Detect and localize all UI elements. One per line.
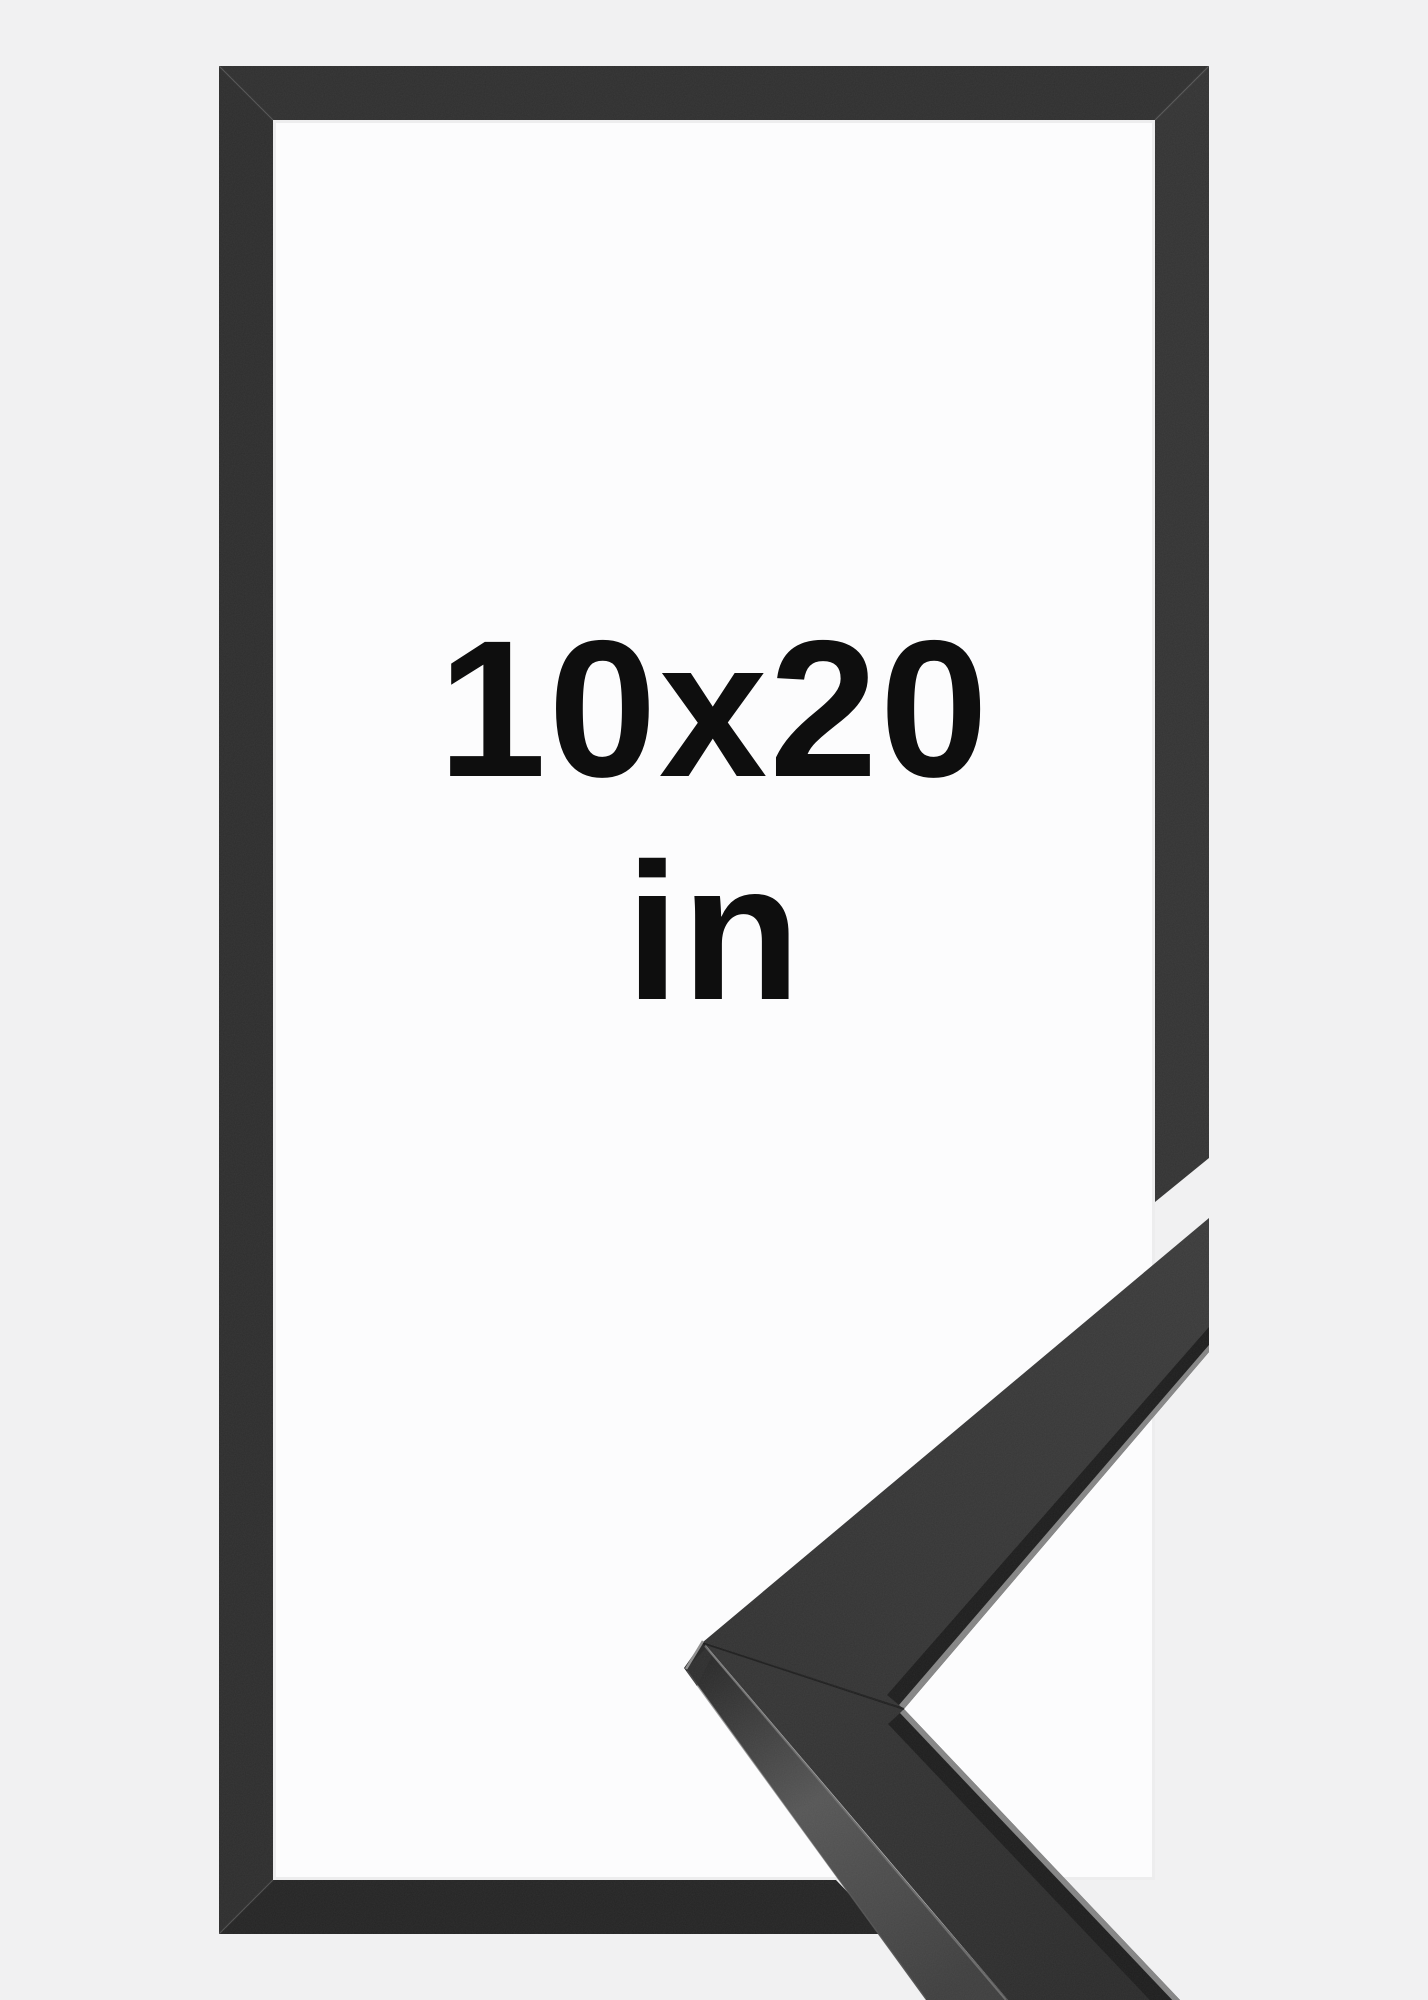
frame-opening <box>273 120 1155 1880</box>
frame-illustration <box>0 0 1428 2000</box>
product-photo: 10x20 in <box>0 0 1428 2000</box>
